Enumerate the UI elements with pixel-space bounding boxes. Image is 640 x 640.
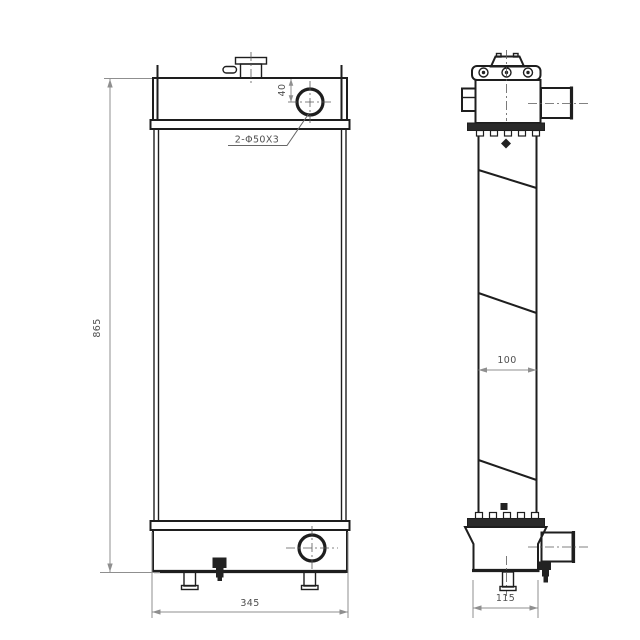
front-bottom-flange xyxy=(151,521,350,530)
front-mounting-stud-left xyxy=(182,572,199,590)
front-overflow-nub xyxy=(223,67,237,74)
ports-callout-text: 2-Φ50X3 xyxy=(235,135,279,146)
front-mounting-stud-right xyxy=(302,572,319,590)
dim-side-width-text: 115 xyxy=(496,593,515,604)
side-top-tank-flange xyxy=(468,123,545,136)
side-left-boss xyxy=(462,89,476,112)
dim-inlet-offset: 40 xyxy=(277,79,293,102)
front-view: 865 345 40 2-Φ50X3 xyxy=(92,52,350,618)
dim-height-text: 865 xyxy=(92,318,103,337)
front-outlet-centerlines xyxy=(286,526,338,570)
front-core-side-edges xyxy=(154,129,346,521)
dim-width-text: 345 xyxy=(240,598,259,609)
side-core-break-lines xyxy=(479,170,537,480)
side-drain-cock xyxy=(539,562,551,583)
front-top-flange xyxy=(151,120,350,129)
side-core-bottom-mark xyxy=(501,503,508,510)
side-bottom-tank-flange xyxy=(468,513,545,527)
side-top-tank xyxy=(476,80,541,123)
side-core-edges xyxy=(479,136,537,518)
side-top-pipe xyxy=(528,87,588,120)
front-drain-plug xyxy=(213,558,227,582)
front-top-corner-tabs xyxy=(158,65,342,120)
side-view: 100 xyxy=(462,50,588,618)
dim-core-text: 100 xyxy=(497,355,516,366)
side-filler-cap xyxy=(491,54,524,67)
side-core-top-mark xyxy=(501,139,511,149)
dim-side-width: 115 xyxy=(473,580,538,618)
front-inlet-centerlines xyxy=(288,81,334,123)
radiator-technical-drawing: 865 345 40 2-Φ50X3 xyxy=(0,0,640,640)
dim-offset-text: 40 xyxy=(277,84,288,97)
dim-overall-width: 345 xyxy=(152,532,348,618)
dim-core-thickness: 100 xyxy=(479,355,537,373)
side-bottom-tank xyxy=(465,527,547,596)
dim-overall-height: 865 xyxy=(92,79,160,573)
drawing-svg: 865 345 40 2-Φ50X3 xyxy=(0,0,640,640)
side-mounting-stud xyxy=(500,572,516,591)
